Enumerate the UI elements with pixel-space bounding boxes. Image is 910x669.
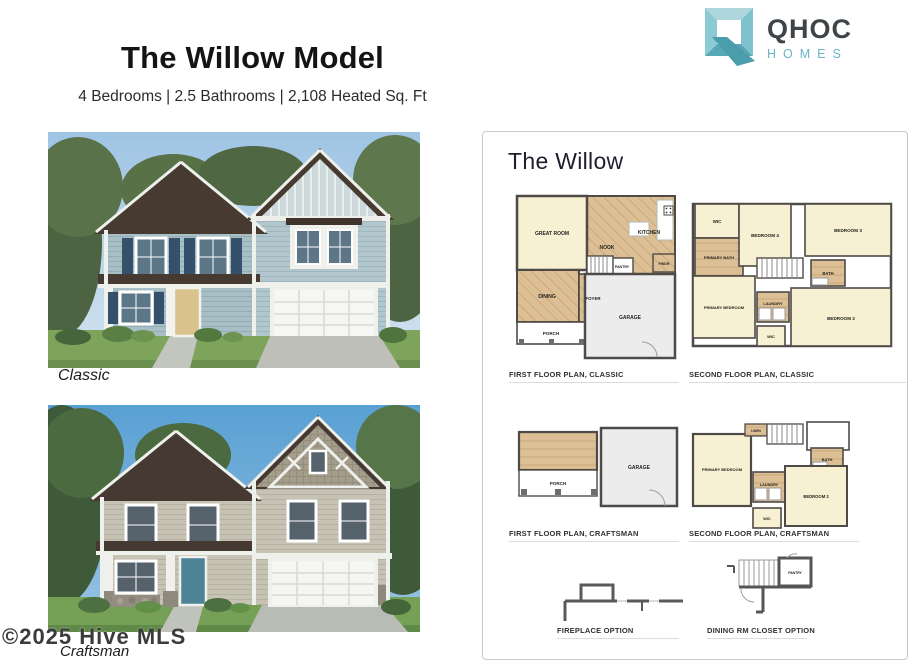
room-label-garage: GARAGE	[619, 315, 642, 321]
first-floor-window	[108, 292, 164, 324]
room-label-dining: DINING	[538, 294, 556, 300]
room-label-bath: BATH	[822, 457, 833, 462]
room-label-laundry: LAUNDRY	[760, 483, 779, 487]
room-label-primary-bath: PRIMARY BATH	[704, 255, 734, 260]
stairs	[767, 424, 803, 444]
caption-dining-closet-option: DINING RM CLOSET OPTION	[707, 626, 807, 639]
room-label-bedroom2: BEDROOM 2	[827, 316, 855, 321]
floor-plans-panel: The Willow GREAT ROOM NOO	[482, 131, 908, 660]
stairs	[739, 560, 781, 586]
plan-second-floor-craftsman: PRIMARY BEDROOM LINEN BATH LAUNDRY BEDRO…	[687, 420, 857, 532]
header: The Willow Model 4 Bedrooms | 2.5 Bathro…	[25, 40, 480, 106]
page-title: The Willow Model	[25, 40, 480, 76]
attic-window	[310, 451, 326, 473]
room-label-primary-bedroom: PRIMARY BEDROOM	[704, 305, 745, 310]
caption-second-floor-classic: SECOND FLOOR PLAN, CLASSIC	[689, 370, 906, 383]
driveway	[256, 336, 400, 368]
garage-door	[270, 288, 378, 336]
room-label-wic: WIC	[763, 517, 771, 521]
front-door	[174, 288, 200, 336]
room-label-garage: GARAGE	[628, 465, 651, 471]
room-label-bath: BATH	[822, 271, 833, 276]
porch-post	[104, 555, 113, 593]
qhoc-logo: QHOC HOMES	[703, 6, 852, 75]
logo-name: QHOC	[767, 16, 852, 43]
caption-fireplace-option: FIREPLACE OPTION	[557, 626, 679, 639]
room-label-pantry: PANTRY	[615, 265, 630, 269]
photo-classic-elevation	[48, 132, 420, 368]
room-label-porch: PORCH	[543, 331, 560, 336]
room-label-wic2: WIC	[767, 334, 775, 339]
front-door	[180, 557, 206, 605]
room-label-bedroom3: BEDROOM 3	[834, 228, 862, 233]
stone-pedestal	[163, 591, 178, 607]
porch-post	[166, 555, 175, 593]
stairs	[587, 256, 613, 274]
qhoc-logo-text: QHOC HOMES	[767, 6, 852, 61]
classic-house-illustration	[48, 132, 420, 368]
panel-heading: The Willow	[508, 148, 623, 175]
diagram-fireplace-option	[551, 576, 686, 621]
fireplace-box	[581, 585, 613, 601]
diagram-dining-closet-option: PANTRY	[723, 552, 815, 620]
room-label-closet: PANTRY	[788, 571, 802, 575]
caption-first-floor-classic: FIRST FLOOR PLAN, CLASSIC	[509, 370, 679, 383]
caption-first-floor-craftsman: FIRST FLOOR PLAN, CRAFTSMAN	[509, 529, 679, 542]
room-label-foyer: FOYER	[585, 296, 601, 301]
room-label-kitchen: KITCHEN	[638, 230, 661, 236]
room-label-bedroom4: BEDROOM 4	[751, 233, 779, 238]
stairs	[757, 258, 803, 278]
room-label-linen: LINEN	[751, 429, 761, 433]
qhoc-logo-icon	[703, 6, 757, 75]
room-label-primary-bedroom: PRIMARY BEDROOM	[702, 467, 743, 472]
craftsman-house-illustration	[48, 405, 420, 632]
room-label-laundry: LAUNDRY	[763, 301, 783, 306]
room-label-pwdr: PWDR	[659, 262, 670, 266]
room-label-bedroom2: BEDROOM 2	[803, 494, 829, 499]
photo-craftsman-elevation	[48, 405, 420, 632]
mls-watermark: ©2025 Hive MLS	[2, 624, 186, 650]
room-label-great-room: GREAT ROOM	[535, 231, 569, 237]
garage-door	[268, 559, 378, 607]
upper-window-left	[122, 238, 180, 276]
bay-window	[286, 218, 362, 269]
logo-tagline: HOMES	[767, 47, 852, 61]
plan-first-floor-craftsman: PORCH GARAGE	[507, 426, 683, 526]
plan-second-floor-classic: WIC PRIMARY BATH BEDROOM 4 BEDROOM 3 PRI…	[685, 196, 907, 368]
room-label-wic: WIC	[713, 219, 722, 224]
room-label-nook: NOOK	[600, 245, 615, 251]
room-label-porch: PORCH	[550, 481, 567, 486]
plan-first-floor-classic: GREAT ROOM NOOK KITCHEN PANTRY PWDR DINI…	[507, 192, 683, 372]
first-floor-window	[116, 561, 156, 593]
caption-second-floor-craftsman: SECOND FLOOR PLAN, CRAFTSMAN	[689, 529, 859, 542]
upper-window-right	[184, 238, 242, 276]
porch-post	[166, 288, 173, 336]
page-subtitle: 4 Bedrooms | 2.5 Bathrooms | 2,108 Heate…	[25, 88, 480, 106]
photo-label-classic: Classic	[58, 367, 110, 385]
